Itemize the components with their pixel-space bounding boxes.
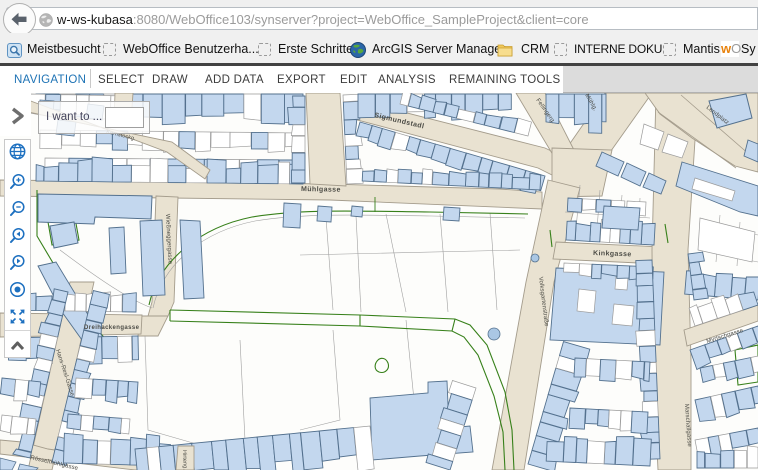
svg-text:Kinkgasse: Kinkgasse: [593, 250, 632, 258]
svg-text:Dreihackengasse: Dreihackengasse: [84, 325, 140, 331]
svg-text:Mühlgasse: Mühlgasse: [301, 186, 341, 194]
svg-text:Hirteng.: Hirteng.: [181, 450, 188, 470]
